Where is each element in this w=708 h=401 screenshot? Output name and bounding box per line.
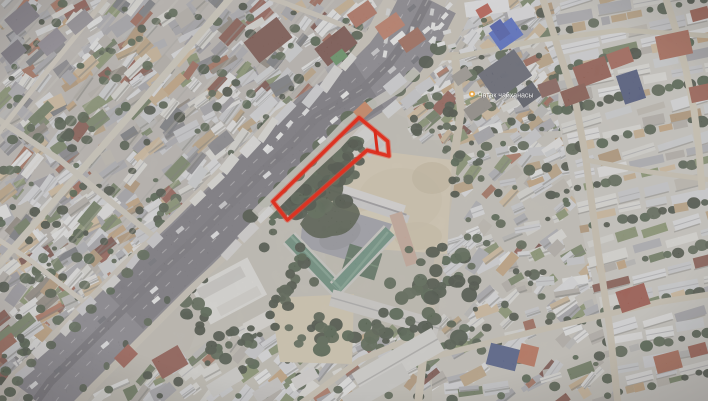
svg-text:Чатак чайханасы: Чатак чайханасы: [478, 92, 534, 100]
